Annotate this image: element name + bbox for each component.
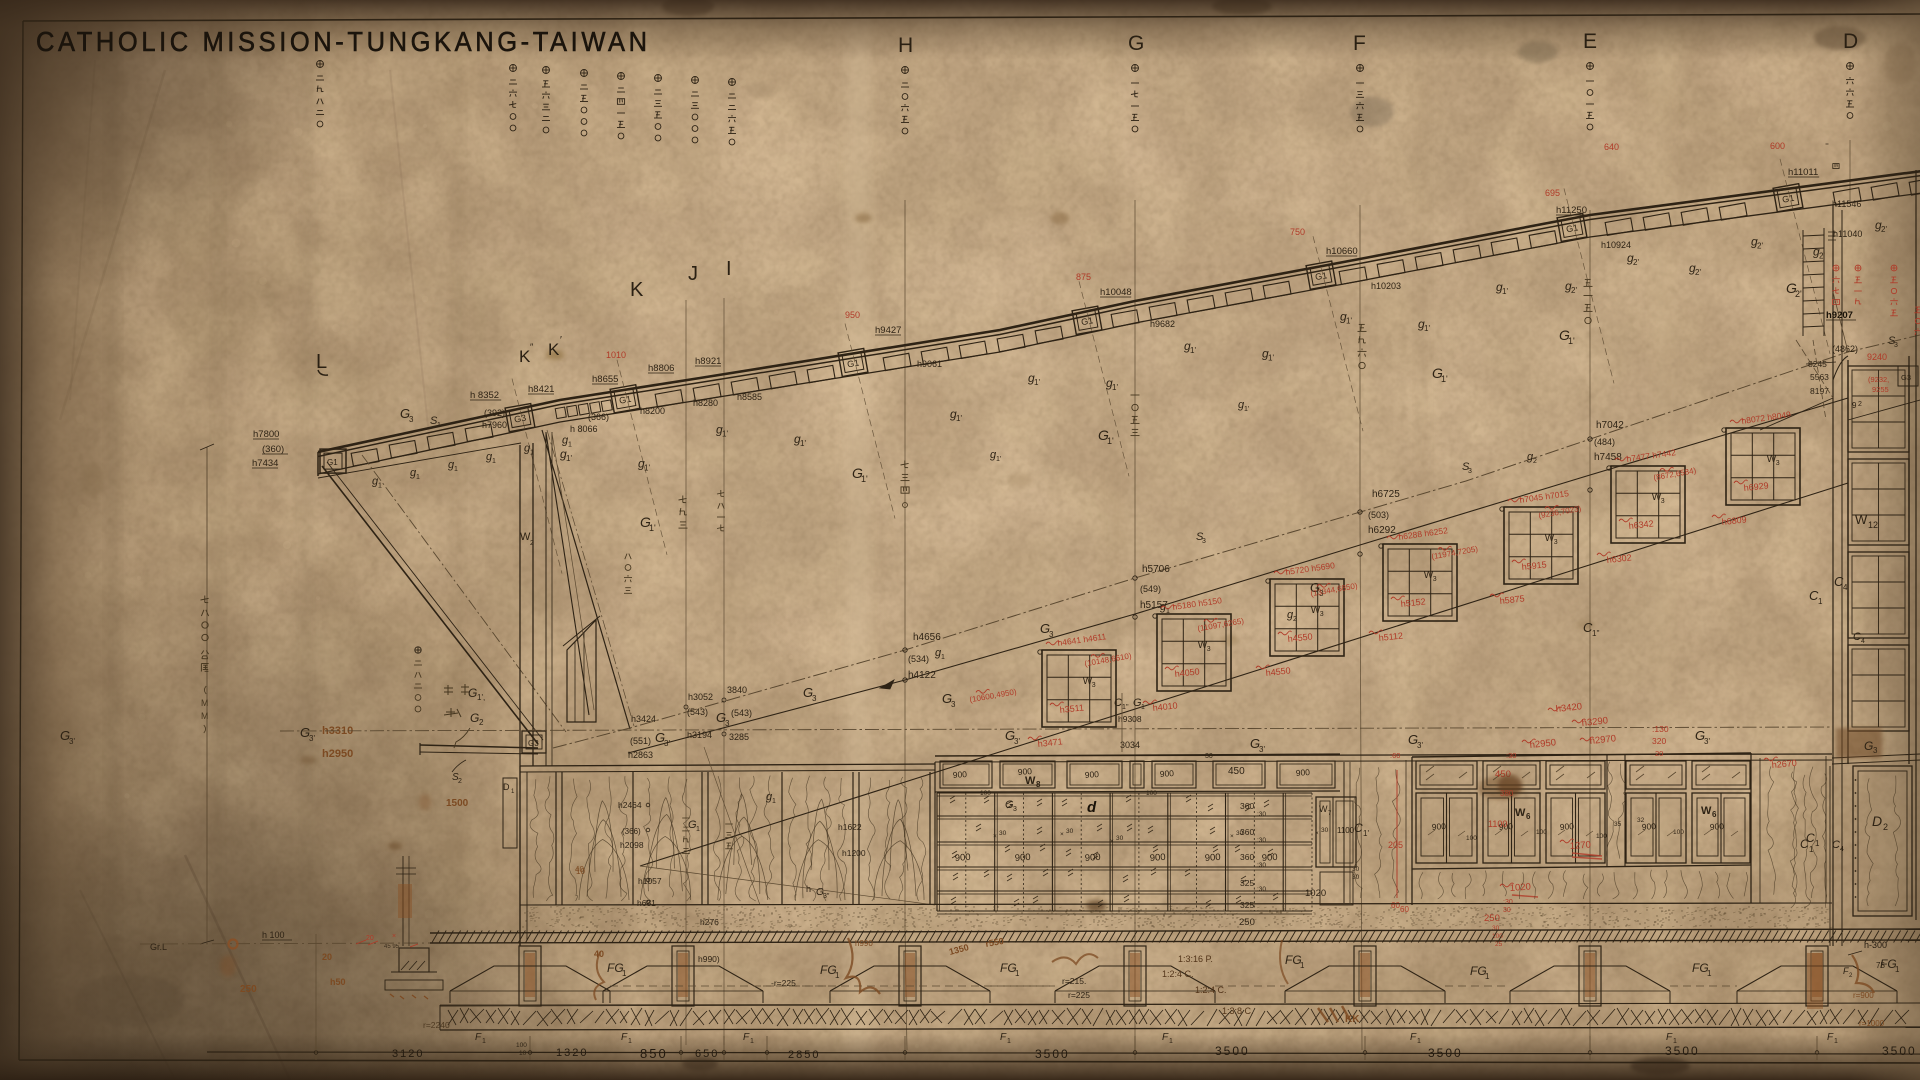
svg-text:h8655: h8655 [592,374,618,385]
svg-text:h3194: h3194 [687,730,712,740]
svg-text:1': 1' [1107,436,1114,446]
svg-text:30: 30 [1321,827,1329,834]
svg-text:640: 640 [1604,142,1619,152]
svg-text:900: 900 [1295,767,1310,778]
svg-text:h4122: h4122 [908,670,936,681]
svg-text:h7458: h7458 [1594,452,1622,463]
svg-text:1: 1 [1809,845,1814,854]
svg-text:h8421: h8421 [528,384,554,395]
svg-text:h11546: h11546 [1832,199,1861,209]
svg-text:1',: 1', [477,693,485,702]
svg-text:2: 2 [530,540,534,547]
svg-text:h7434: h7434 [252,458,278,469]
svg-text:3: 3 [1320,611,1324,618]
svg-text:3: 3 [409,415,414,424]
svg-text:I: I [726,258,732,280]
svg-text:250: 250 [240,984,257,995]
svg-text:3': 3' [309,734,315,743]
svg-text:3': 3' [1014,737,1020,746]
svg-text:3″: 3″ [823,893,830,900]
svg-text:G3: G3 [1901,373,1911,382]
svg-text:F: F [1410,1032,1417,1043]
svg-text:900: 900 [954,852,971,864]
svg-text:100: 100 [516,1042,527,1049]
svg-text:3: 3 [1468,468,1472,475]
svg-text:G1: G1 [618,394,632,406]
svg-text:G1: G1 [1565,222,1579,234]
svg-text:3285: 3285 [729,732,749,742]
svg-text:(4862): (4862) [1832,344,1858,354]
svg-text:1:3:16 P.: 1:3:16 P. [1178,954,1213,964]
svg-text:h11011: h11011 [1788,167,1818,178]
svg-text:F: F [475,1032,482,1043]
svg-text:h2098: h2098 [620,840,644,850]
svg-text:h11040: h11040 [1833,229,1862,239]
svg-text:h3424: h3424 [631,714,656,724]
svg-text:D: D [1872,813,1882,829]
svg-text::30: :30 [1257,837,1266,844]
svg-text:10: 10 [576,867,585,876]
svg-text:×: × [993,833,997,840]
svg-text:1': 1' [1424,324,1430,333]
svg-text:h9061: h9061 [917,359,942,369]
svg-text:3: 3 [1661,498,1665,505]
svg-text:Gr.L: Gr.L [150,942,167,952]
svg-text:1020: 1020 [1509,882,1531,894]
svg-text:1': 1' [956,414,962,423]
svg-text:2850: 2850 [788,1049,820,1061]
svg-text:1100: 1100 [1337,826,1355,835]
svg-text:3': 3' [69,737,75,746]
svg-text:h6725: h6725 [1372,489,1400,500]
svg-text:h10203: h10203 [1371,281,1401,291]
svg-text:1': 1' [1568,336,1575,346]
svg-text:C: C [1354,821,1363,835]
svg-text:1270: 1270 [1569,840,1591,852]
svg-text:325: 325 [1240,900,1254,910]
svg-text:750: 750 [1290,227,1305,237]
svg-text:3: 3 [812,694,817,703]
svg-text:75: 75 [1876,961,1885,970]
svg-text:30: 30 [1066,828,1074,835]
svg-text:(360): (360) [262,444,284,455]
svg-text:60: 60 [1391,901,1400,910]
svg-text:6: 6 [1526,812,1531,821]
svg-text:M: M [201,698,208,708]
svg-text:W: W [1515,807,1526,819]
svg-text:1: 1 [1300,961,1305,970]
svg-text:h8806: h8806 [648,363,674,374]
svg-text:1100: 1100 [1488,819,1507,829]
svg-text:K: K [548,340,560,359]
svg-text:35: 35 [1614,821,1622,828]
svg-text:3500: 3500 [1428,1046,1463,1060]
svg-text:h1622: h1622 [838,822,862,832]
svg-text:20: 20 [1655,749,1663,758]
svg-text:900: 900 [1084,769,1099,780]
svg-text:1': 1' [861,474,868,484]
svg-text:h3052: h3052 [688,692,713,702]
svg-text:60: 60 [1400,905,1409,914]
svg-text:3034: 3034 [1120,740,1140,750]
svg-text:J: J [688,263,698,285]
svg-text:9240: 9240 [1867,352,1887,362]
svg-text:′: ′ [560,335,562,346]
svg-text:h8921: h8921 [695,356,721,367]
svg-text:D: D [503,782,510,792]
svg-text:900: 900 [1204,852,1221,864]
svg-text:h 8066: h 8066 [570,424,598,434]
svg-text:1: 1 [416,474,420,481]
svg-text:4: 4 [1843,583,1848,592]
svg-text:F: F [1162,1032,1169,1043]
svg-text:3840: 3840 [727,685,747,695]
svg-text:3120: 3120 [392,1048,424,1060]
svg-text:1': 1' [644,464,650,473]
svg-text:E: E [1583,30,1597,53]
svg-text:380: 380 [1500,789,1514,798]
svg-text:3: 3 [1894,342,1898,349]
svg-text:h7960: h7960 [482,420,507,430]
svg-text:h1200: h1200 [842,848,866,858]
svg-text:1: 1 [1141,704,1145,711]
svg-text:-r=225: -r=225 [771,978,796,988]
svg-text:×: × [1060,831,1064,838]
svg-text:450: 450 [1228,766,1245,777]
svg-text:1:2:4 C.: 1:2:4 C. [1162,969,1194,979]
svg-text:(366): (366) [622,827,641,836]
svg-text:250: 250 [1239,917,1255,928]
svg-text:3: 3 [1207,646,1211,653]
svg-text:h8585: h8585 [737,392,762,402]
svg-text:900: 900 [1709,821,1724,832]
svg-text:C: C [1853,631,1861,643]
svg-text:h9682: h9682 [1150,319,1175,329]
svg-text::30: :30 [1506,751,1516,760]
svg-text:695: 695 [1545,188,1560,198]
svg-text:(366): (366) [588,412,609,422]
svg-text:950: 950 [845,310,860,320]
svg-text:1: 1 [1815,839,1820,848]
svg-text:G3: G3 [513,413,527,425]
svg-text:30: 30 [1205,753,1213,760]
svg-text:1: 1 [482,1038,486,1045]
svg-text:1: 1 [492,458,496,465]
svg-text:G3: G3 [528,739,539,748]
svg-text:1: 1 [568,442,572,449]
svg-text:3: 3 [1554,539,1558,546]
svg-text:1': 1' [566,454,572,463]
svg-text:h5706: h5706 [1142,564,1170,575]
svg-text:h8200: h8200 [640,406,665,416]
svg-text:F: F [1353,32,1366,55]
svg-text:2': 2' [1571,286,1577,295]
svg-text:2': 2' [1633,258,1639,267]
svg-text:(543): (543) [731,708,752,718]
svg-text:3500: 3500 [1215,1044,1250,1058]
svg-text:×: × [1110,838,1114,845]
svg-text:1: 1 [1169,1038,1173,1045]
svg-text:(484): (484) [1594,437,1615,447]
svg-text:3': 3' [664,739,670,748]
svg-text:(543): (543) [687,707,708,717]
svg-text:900: 900 [1149,852,1166,864]
svg-text:1': 1' [1346,317,1352,326]
svg-text:3: 3 [1049,630,1054,639]
svg-text:h 100: h 100 [262,930,285,940]
svg-text:×: × [392,933,396,940]
svg-text:2': 2' [1881,225,1887,234]
svg-text:G: G [470,711,479,725]
svg-text:r=900: r=900 [1853,991,1874,1000]
svg-text:h276: h276 [700,917,719,927]
svg-text:45 95: 45 95 [384,944,400,950]
svg-text:3: 3 [1776,460,1780,467]
svg-text:650: 650 [695,1048,719,1060]
svg-text:6: 6 [1712,810,1717,819]
svg-text:1: 1 [378,482,382,489]
svg-text:G1: G1 [327,458,338,467]
svg-text:h9308: h9308 [1118,714,1142,724]
svg-text:4: 4 [1840,846,1844,853]
svg-text:205: 205 [1388,840,1403,850]
svg-text:h2950: h2950 [322,748,353,760]
svg-text:1: 1 [437,422,441,429]
svg-text:1: 1 [628,1038,632,1045]
svg-text:1: 1 [750,1038,754,1045]
svg-text:1: 1 [1015,969,1020,978]
svg-text:F: F [1000,1032,1007,1043]
svg-text:3: 3 [1433,576,1437,583]
svg-text:1'': 1'' [1592,629,1600,638]
svg-text:360: 360 [1240,801,1254,811]
svg-text:2: 2 [1883,822,1888,832]
svg-text:L: L [316,351,327,373]
svg-text:1': 1' [649,523,656,533]
svg-text:1: 1 [1707,969,1712,978]
svg-text:G1: G1 [1080,315,1094,327]
svg-text:850: 850 [640,1046,668,1061]
svg-text:1': 1' [1034,378,1040,387]
svg-text:1: 1 [696,826,700,833]
svg-text:h2863: h2863 [628,750,653,760]
svg-text:1: 1 [1818,597,1823,606]
svg-text:r=215.: r=215. [1062,976,1086,986]
svg-text:G1: G1 [1781,193,1795,205]
svg-text:1': 1' [996,456,1001,463]
svg-text::60: :60 [1390,751,1400,760]
svg-text:2: 2 [1533,458,1537,465]
svg-text:3: 3 [1092,682,1096,689]
svg-text:900: 900 [1084,852,1101,864]
svg-text:875: 875 [1076,272,1091,282]
svg-text:3: 3 [725,719,730,728]
svg-text:r=225: r=225 [1068,990,1090,1000]
svg-text:3: 3 [1873,746,1878,755]
svg-text:1: 1 [772,798,776,805]
svg-text:1500: 1500 [446,798,469,809]
svg-text:1:2:4 C.: 1:2:4 C. [1195,985,1227,995]
svg-text:4: 4 [1861,638,1865,645]
svg-text:30: 30 [1116,835,1124,842]
svg-text:h7042: h7042 [1596,420,1624,431]
svg-text:1020: 1020 [1305,888,1326,899]
svg-text:r=2240: r=2240 [423,1020,450,1030]
svg-text:F: F [621,1032,628,1043]
svg-text::130: :130 [1652,724,1669,734]
svg-text:1': 1' [1244,406,1249,413]
svg-text:G1: G1 [846,358,860,370]
svg-text:1: 1 [454,466,458,473]
svg-text:1': 1' [1268,353,1274,362]
svg-text:9: 9 [1852,401,1857,410]
svg-text:G1: G1 [1314,270,1328,282]
svg-text:C: C [1800,837,1809,851]
svg-text:h: h [806,884,811,894]
svg-text:G: G [1864,739,1873,753]
svg-text:1': 1' [1112,383,1118,392]
svg-text:h10924: h10924 [1601,240,1631,250]
svg-text:W: W [1855,512,1868,527]
svg-text:h-300: h-300 [1864,940,1887,950]
svg-text:1: 1 [622,969,627,978]
svg-text:1': 1' [722,429,728,438]
svg-text:32: 32 [1637,817,1645,824]
svg-text:20: 20 [366,935,374,942]
svg-text:(549): (549) [1140,584,1161,594]
svg-text:d: d [1087,799,1097,816]
svg-text:2': 2' [1757,242,1763,251]
svg-text:1: 1 [941,654,945,661]
svg-text:F: F [1827,1032,1834,1043]
svg-text:900: 900 [952,769,967,780]
svg-text:325: 325 [1240,878,1254,888]
svg-text:3': 3' [1259,745,1265,754]
svg-text:10: 10 [519,1050,527,1057]
svg-text::30: :30 [1257,862,1266,869]
svg-text:360: 360 [1240,852,1254,862]
svg-text:(551): (551) [630,736,651,746]
svg-text:2': 2' [1795,289,1802,299]
svg-text:2: 2 [1858,401,1862,408]
svg-text:F: F [743,1032,750,1043]
svg-text:M: M [201,711,208,721]
svg-text:12: 12 [1868,520,1878,530]
svg-text:100: 100 [1466,835,1477,842]
svg-text:100: 100 [1596,833,1607,840]
svg-text:3: 3 [1202,538,1206,545]
svg-text:F: F [1666,1032,1673,1043]
svg-text:1'': 1'' [1122,704,1129,711]
svg-text:9255: 9255 [1872,385,1889,394]
svg-text:100: 100 [1673,829,1684,836]
svg-text:h50: h50 [330,977,346,987]
svg-text:h 8352: h 8352 [470,390,499,401]
svg-text:8: 8 [1036,780,1041,789]
svg-text:1': 1' [1441,374,1448,384]
svg-text:1: 1 [1834,1038,1838,1045]
svg-text::30: :30 [1257,811,1266,818]
svg-text:1010: 1010 [606,350,626,360]
svg-text:2': 2' [1695,268,1701,277]
svg-text:1': 1' [1190,346,1196,355]
svg-text:K: K [630,279,644,301]
svg-text:900: 900 [1014,852,1031,864]
svg-text:3: 3 [1013,806,1017,813]
svg-text:900: 900 [1559,821,1574,832]
svg-text:h10660: h10660 [1326,246,1358,257]
svg-text:G: G [1128,32,1144,55]
svg-text:1320: 1320 [556,1047,588,1059]
svg-text:h6292: h6292 [1368,525,1396,536]
svg-text:h8280: h8280 [693,398,718,408]
svg-text:W: W [1319,804,1328,814]
svg-text:W: W [1701,805,1712,817]
svg-text:C: C [1832,839,1840,851]
svg-text:(9232,: (9232, [1868,375,1889,384]
svg-text:1: 1 [1007,1038,1011,1045]
svg-text:CATHOLIC MISSION-TUNGKANG-TAIW: CATHOLIC MISSION-TUNGKANG-TAIWAN [36,26,651,57]
svg-text:3500: 3500 [1665,1044,1700,1058]
svg-text:h990): h990) [698,954,720,964]
svg-text:H: H [898,34,913,57]
svg-text:D: D [1843,30,1858,53]
svg-text:h5157: h5157 [1140,600,1168,611]
svg-text:100: 100 [1536,829,1547,836]
svg-text:G: G [468,686,477,700]
svg-text:3': 3' [1704,737,1710,746]
svg-text:h10048: h10048 [1100,287,1132,298]
svg-text:25: 25 [1495,941,1503,948]
svg-text:2: 2 [479,718,484,727]
svg-text:1': 1' [1502,287,1508,296]
svg-text:2: 2 [458,778,462,785]
svg-text:r=1000: r=1000 [1859,1019,1885,1028]
svg-text:C: C [1114,697,1122,709]
svg-text:1': 1' [800,439,806,448]
svg-text:1: 1 [1417,1038,1421,1045]
svg-text:3': 3' [1417,741,1423,750]
svg-text:900: 900 [1431,821,1446,832]
svg-text:1:3:8 C.: 1:3:8 C. [1222,1006,1254,1016]
svg-text:30: 30 [999,830,1007,837]
svg-text:1: 1 [1485,972,1490,981]
svg-text:600: 600 [1770,141,1785,151]
svg-text:h9427: h9427 [875,325,901,336]
svg-text:900: 900 [1159,768,1174,779]
svg-text:h7800: h7800 [253,429,279,440]
svg-text:h2464: h2464 [618,800,642,810]
svg-text:h11250: h11250 [1556,205,1587,216]
svg-text:3500: 3500 [1882,1044,1917,1058]
svg-text:(534): (534) [908,654,929,664]
svg-text:(392): (392) [484,408,505,418]
svg-text:1: 1 [835,971,840,980]
svg-text::30: :30 [1257,886,1266,893]
svg-text:h990: h990 [855,939,873,948]
svg-text:320: 320 [1652,736,1666,746]
svg-text:30: 30 [1492,925,1500,932]
svg-text:(503): (503) [1368,510,1389,520]
svg-text:1: 1 [1895,965,1900,974]
svg-text::30: :30 [1503,899,1513,906]
svg-text:3: 3 [951,700,956,709]
svg-text:360: 360 [1240,827,1254,837]
svg-text:1': 1' [1363,829,1369,838]
svg-text:h4656: h4656 [913,632,941,643]
svg-text:KK: KK [1345,1014,1360,1025]
svg-text:3500: 3500 [1035,1047,1070,1061]
